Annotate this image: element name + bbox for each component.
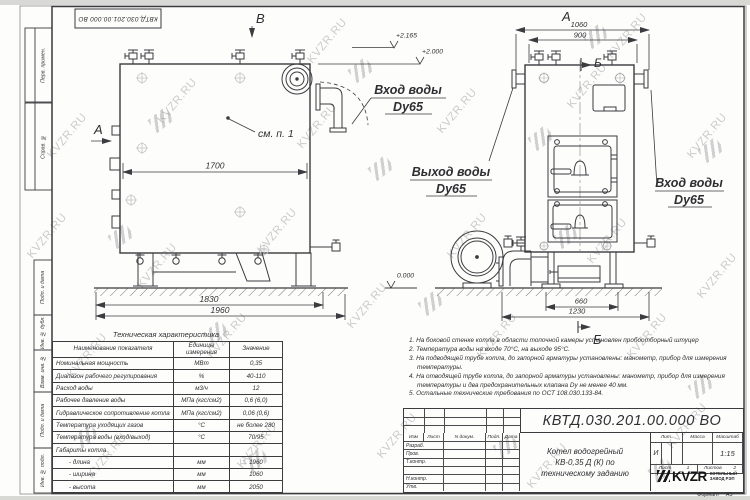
inlet-right-label-line1: Вход воды	[655, 176, 723, 190]
dimensions	[91, 26, 724, 333]
spec-table-header: Наименование показателя Единицы измерени…	[53, 342, 282, 357]
spec-table-row: Диапазон рабочего регулирования%40-110	[53, 369, 282, 381]
spec-cell: Гидравлическое сопротивление котла	[53, 407, 174, 418]
col-data: Дата	[503, 433, 520, 441]
sign-label: Т.контр.	[404, 459, 444, 466]
spec-cell: 40-110	[230, 370, 282, 381]
spec-cell: 1960	[230, 457, 282, 468]
dim-front-inner: 900	[574, 31, 587, 40]
kvzr-logo-icon	[657, 470, 670, 482]
inlet-top-label-line1: Вход воды	[374, 83, 442, 97]
spec-cell: Рабочее давление воды	[53, 395, 174, 406]
spec-cell: Температура воды (вход/выход)	[53, 432, 174, 443]
note-item: 5. Остальные технические требования по О…	[409, 390, 744, 399]
margin-col-vzam-inv: Взам. инв. №	[35, 350, 51, 392]
spec-table: Наименование показателя Единицы измерени…	[52, 341, 283, 493]
spec-table-row: - ширинамм1060	[53, 468, 282, 480]
dim-base-total: 1230	[569, 307, 587, 316]
title-block-right: Лит. Масса Масштаб И 1:15 Лист 1 Листов …	[651, 433, 743, 491]
format-note: ФорматА3	[697, 492, 740, 498]
col-podp: Подп.	[486, 433, 503, 441]
spec-cell: 1060	[230, 469, 282, 480]
doc-number: КВТД.030.201.00.000 ВО	[520, 409, 743, 433]
spec-cell: МПа (кгс/см2)	[174, 407, 230, 418]
title-block: КВТД.030.201.00.000 ВО Изм Лист N докум.…	[403, 408, 744, 493]
margin-col-inv-podl: Инв. № подл.	[35, 448, 51, 493]
col-list: Лист	[424, 433, 444, 441]
scale-header: Масштаб	[713, 433, 743, 442]
dim-front-total: 1060	[571, 20, 589, 29]
format-value: А3	[726, 492, 733, 498]
elevation-ground: 0.000	[397, 273, 414, 280]
spec-cell	[174, 444, 230, 455]
drawing-sheet: KVZR.RUKVZR.RUKVZR.RUKVZR.RUKVZR.RUKVZR.…	[0, 0, 750, 500]
inlet-top-label-line2: Dy65	[393, 100, 424, 114]
spec-cell: °С	[174, 420, 230, 431]
top-stamp: КВТД.030.201.00.000 ВО	[75, 9, 161, 28]
view-marker-a-left: А	[93, 122, 103, 137]
air-duct-elbow	[496, 251, 548, 286]
margin-col-podp-data-1: Подп. и дата	[35, 260, 51, 315]
grid-line	[424, 409, 425, 433]
note-item: 4. На отводящей трубе котла, до запорной…	[409, 373, 744, 391]
technical-notes: 1. На боковой стенке котла в области топ…	[409, 337, 744, 399]
spec-cell: МВт	[174, 358, 230, 369]
spec-cell: Диапазон рабочего регулирования	[53, 370, 174, 381]
format-label: Формат	[697, 492, 719, 498]
col-ndokum: N докум.	[444, 433, 486, 441]
note-item: 2. Температура воды на входе 70°С, на вы…	[409, 346, 744, 355]
spec-cell: мм	[174, 481, 230, 492]
spec-cell: 12	[230, 383, 282, 394]
sign-label: Пров.	[404, 450, 444, 457]
drawing-title-line1: Котел водогрейный	[547, 446, 623, 457]
elevation-valve-top: +2.165	[396, 33, 417, 40]
mass-value	[683, 442, 713, 464]
spec-table-row: Расход водым3/ч12	[53, 382, 282, 394]
lit-header: Лит.	[651, 433, 683, 442]
dim-left-total: 1960	[211, 305, 230, 315]
spec-cell	[230, 444, 282, 455]
note-item: 3. На подводящей трубе котла, до запорно…	[409, 355, 744, 373]
outlet-label-line1: Выход воды	[412, 165, 491, 179]
spec-cell: Расход воды	[53, 383, 174, 394]
spec-cell: 0,06 (0,6)	[230, 407, 282, 418]
spec-cell: - ширина	[53, 469, 174, 480]
view-marker-v-top: В	[256, 11, 265, 26]
margin-col-inv-dubl: Инв. № дубл.	[35, 315, 51, 350]
spec-header-name: Наименование показателя	[53, 342, 174, 357]
spec-table-row: - высотамм2050	[53, 480, 282, 492]
dim-base-inner: 660	[575, 297, 588, 306]
margin-col-podp-data-2: Подп. и дата	[35, 392, 51, 448]
flange-circle	[282, 64, 312, 94]
spec-cell: не более 280	[230, 420, 282, 431]
section-marker-b-top: Б	[594, 56, 602, 70]
spec-table-row: Номинальная мощностьМВт0,35	[53, 357, 282, 369]
spec-cell: 2050	[230, 481, 282, 492]
inlet-right-label-line2: Dy65	[674, 193, 705, 207]
note-item: 1. На боковой стенке котла в области топ…	[409, 337, 744, 346]
elevation-boiler-top: +2.000	[422, 49, 443, 56]
view-marker-a-front: А	[561, 9, 571, 24]
grid-line	[503, 409, 504, 433]
spec-cell: 0,6 (6,0)	[230, 395, 282, 406]
outlet-label-line2: Dy65	[436, 182, 467, 196]
signature-rows: Разраб. Пров. Т.контр. Н.контр. Утв.	[404, 442, 520, 491]
spec-table-row: Температура уходящих газов°Сне более 280	[53, 419, 282, 431]
spec-header-value: Значение	[230, 342, 282, 357]
grid-line	[444, 409, 445, 433]
spec-table-title: Техническая характеристика	[96, 330, 236, 339]
sign-label: Разраб.	[404, 442, 444, 449]
scale-value: 1:15	[713, 442, 743, 464]
spec-cell: 0,35	[230, 358, 282, 369]
lit-value: И	[651, 442, 662, 464]
blower-fan	[451, 231, 503, 288]
boiler-front-outline	[525, 65, 634, 252]
sign-label: Утв.	[404, 484, 444, 491]
drawing-texts: 1700 1830 1960 1060 900 660 1230 А В А Б…	[93, 9, 723, 347]
company-name: КОТЕЛЬНЫЙ ЗАВОД РЭП	[710, 471, 737, 481]
spec-cell: Номинальная мощность	[53, 358, 174, 369]
inlet-elbow	[316, 82, 368, 132]
spec-table-row: Температура воды (вход/выход)°С70/95	[53, 431, 282, 443]
boiler-side-outline	[120, 64, 310, 253]
mass-header: Масса	[683, 433, 713, 442]
margin-col-sprav: Справ. №	[36, 103, 51, 190]
spec-header-units: Единицы измерения	[174, 342, 230, 357]
spec-table-row: Габариты котла	[53, 443, 282, 455]
sign-label: Н.контр.	[404, 475, 444, 482]
spec-cell: Температура уходящих газов	[53, 420, 174, 431]
spec-cell: °С	[174, 432, 230, 443]
spec-cell: мм	[174, 457, 230, 468]
spec-table-row: Рабочее давление водыМПа (кгс/см2)0,6 (6…	[53, 394, 282, 406]
drawing-title-line3: техническому заданию	[541, 468, 629, 479]
spec-cell: МПа (кгс/см2)	[174, 395, 230, 406]
kvzr-logo-text: KVZR	[672, 469, 707, 484]
drawing-title: Котел водогрейный КВ-0,35 Д (К) по техни…	[520, 433, 651, 491]
spec-table-row: Гидравлическое сопротивление котлаМПа (к…	[53, 406, 282, 418]
dim-left-legs: 1830	[200, 294, 219, 304]
revision-header-row: Изм Лист N докум. Подп. Дата	[404, 433, 520, 442]
spec-table-body: Номинальная мощностьМВт0,35Диапазон рабо…	[53, 357, 282, 493]
grid-line	[486, 409, 487, 433]
spec-cell: Габариты котла	[53, 444, 174, 455]
callout-see-item: см. п. 1	[258, 128, 294, 140]
dim-left-inner: 1700	[206, 161, 225, 171]
lower-door	[548, 200, 617, 242]
spec-cell: мм	[174, 469, 230, 480]
company-name-line2: ЗАВОД РЭП	[710, 476, 737, 481]
col-izm: Изм	[404, 433, 424, 441]
boiler-side-view	[94, 50, 368, 296]
drawing-title-line2: КВ-0,35 Д (К) по	[555, 457, 614, 468]
company-logo: KVZR КОТЕЛЬНЫЙ ЗАВОД РЭП	[651, 467, 743, 485]
spec-table-row: - длинамм1960	[53, 456, 282, 468]
margin-col-perv-primen: Перв. примен.	[36, 28, 51, 102]
spec-cell: - длина	[53, 457, 174, 468]
upper-door	[548, 136, 617, 197]
spec-cell: м3/ч	[174, 383, 230, 394]
spec-cell: %	[174, 370, 230, 381]
sign-label	[404, 467, 444, 474]
spec-cell: - высота	[53, 481, 174, 492]
spec-cell: 70/95	[230, 432, 282, 443]
